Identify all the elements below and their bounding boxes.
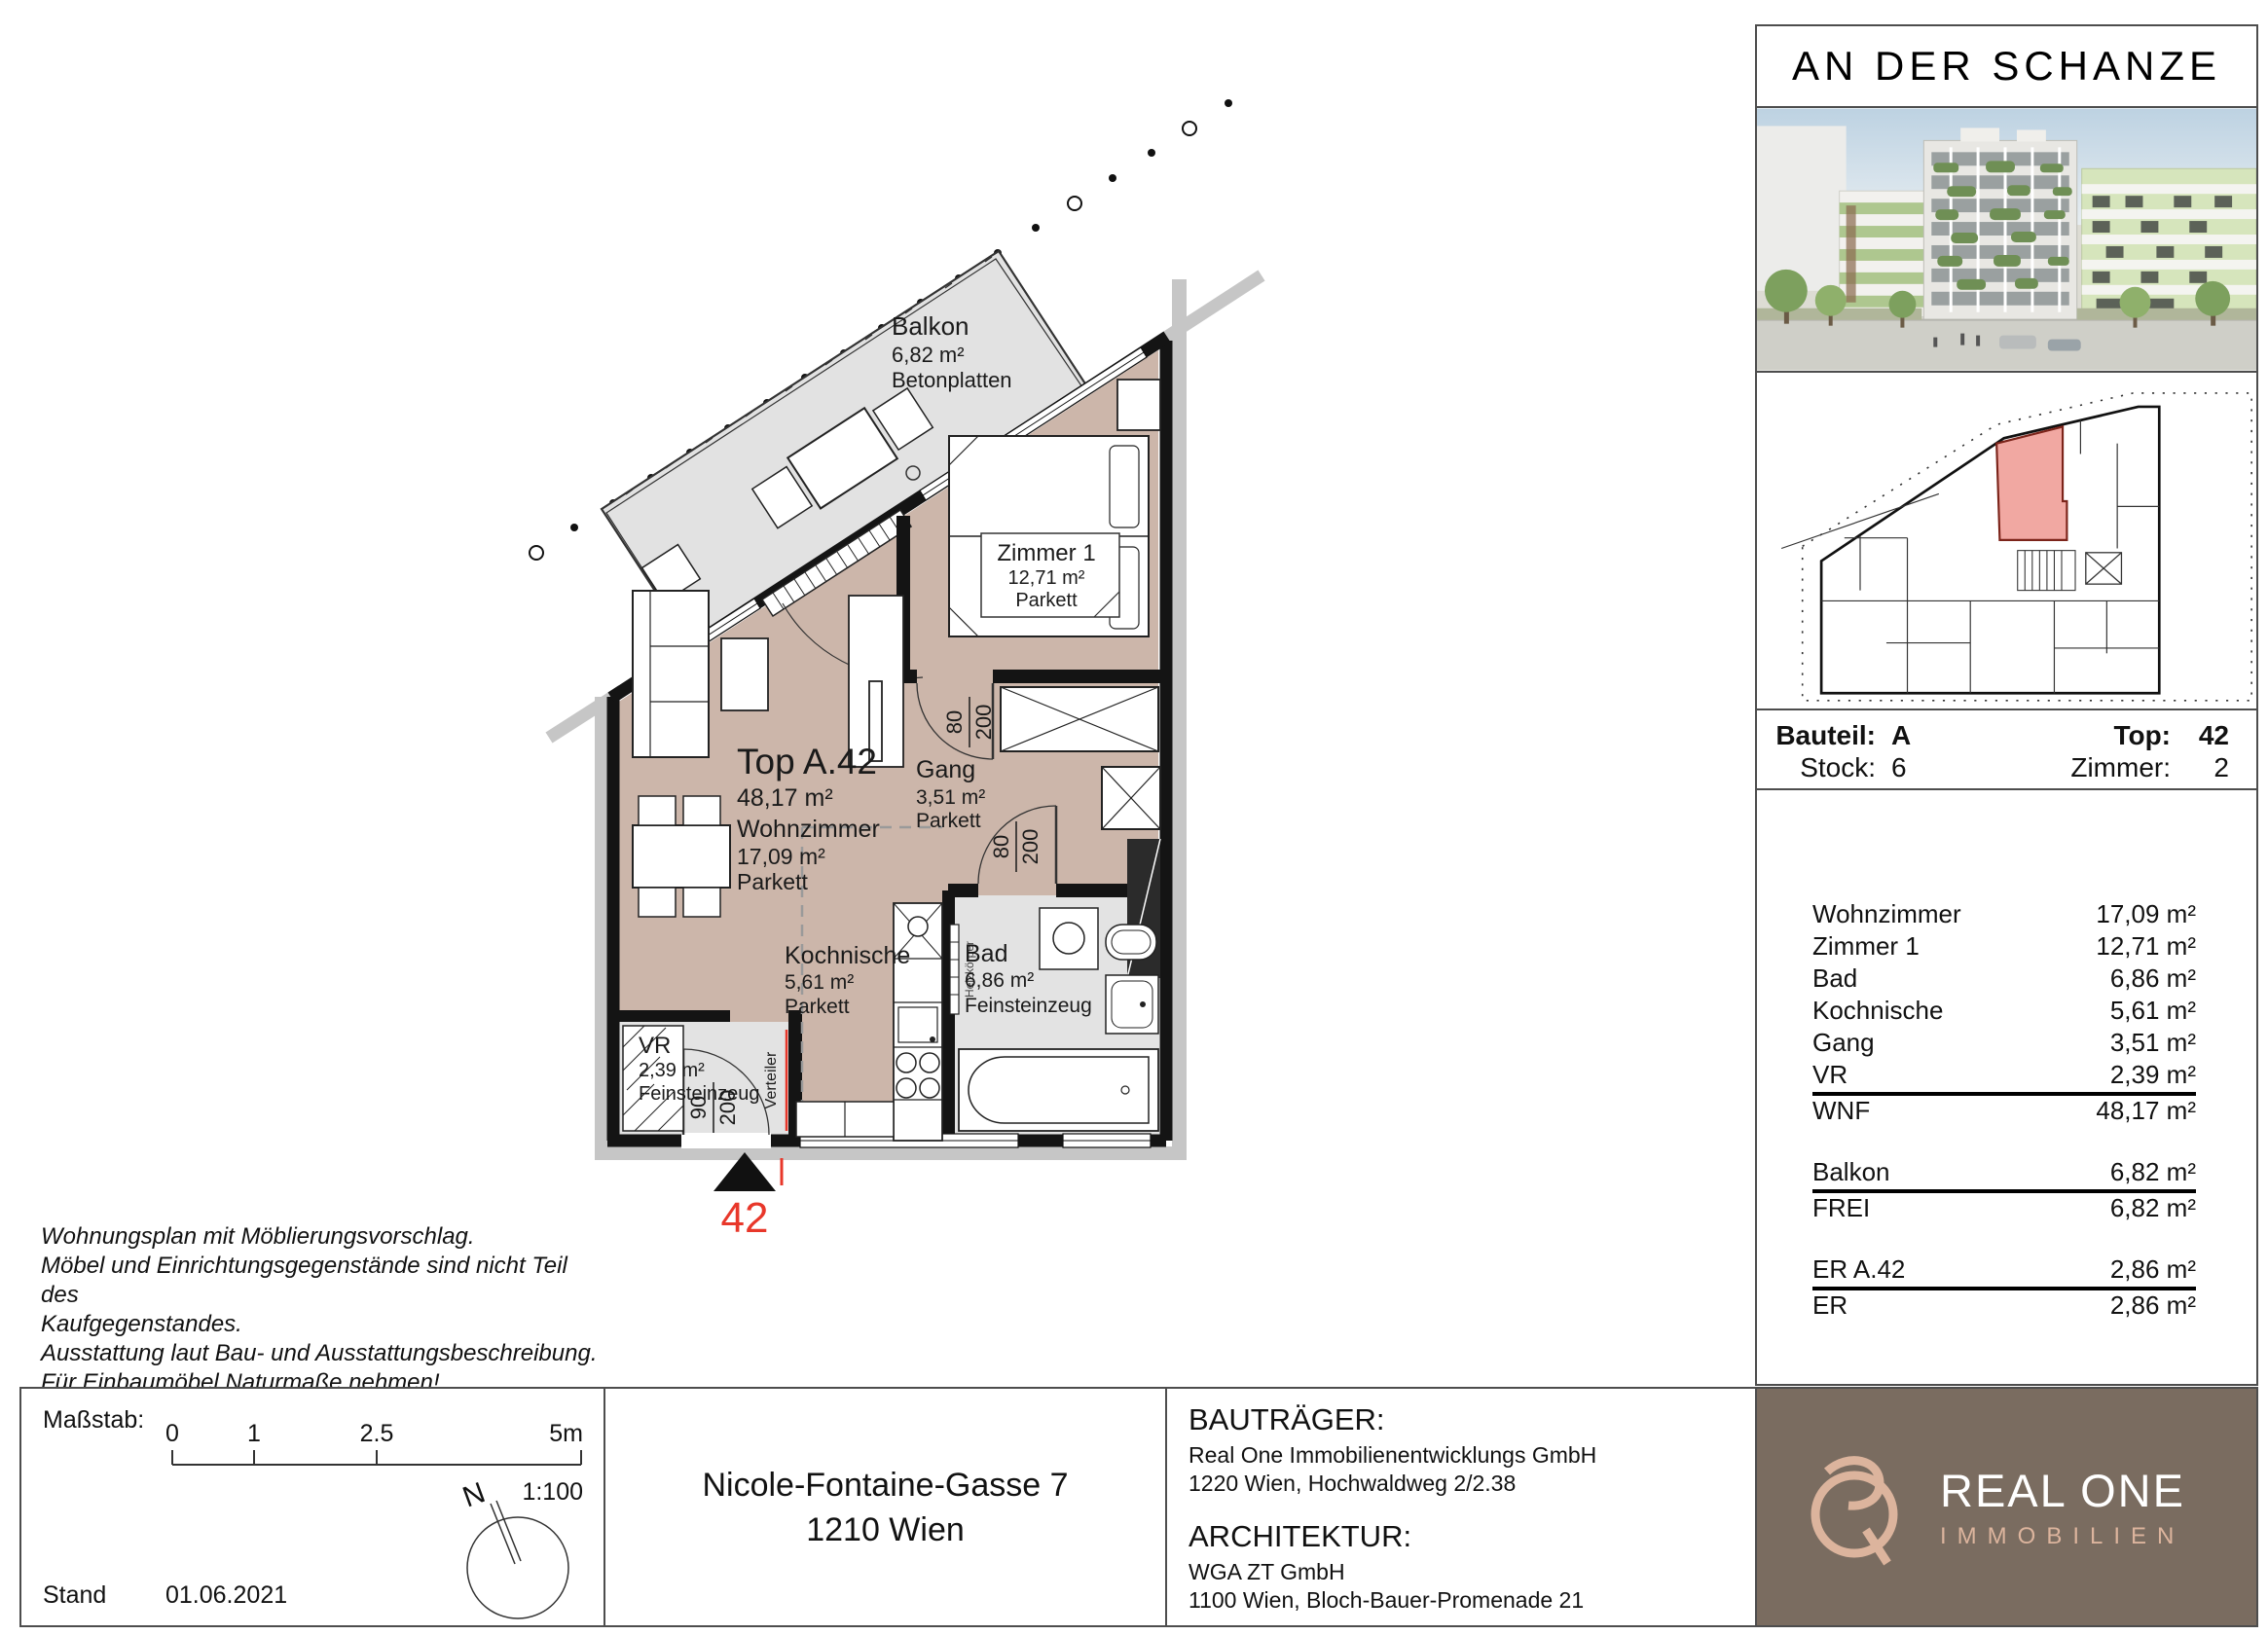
top-value: 42	[2184, 719, 2229, 751]
svg-text:Feinsteinzeug: Feinsteinzeug	[965, 995, 1092, 1017]
highlighted-unit	[1996, 426, 2067, 539]
brand-logo-box: REAL ONE IMMOBILIEN	[1755, 1387, 2258, 1627]
svg-text:Kochnische: Kochnische	[785, 942, 910, 969]
plan-sheet: Balkon 6,82 m² Betonplatten	[0, 0, 2268, 1635]
project-title: AN DER SCHANZE	[1757, 26, 2256, 108]
svg-text:200: 200	[971, 705, 996, 741]
balkon-name: Balkon	[892, 311, 969, 341]
floor-plan: Balkon 6,82 m² Betonplatten	[516, 83, 1304, 1251]
area-table: Wohnzimmer17,09 m² Zimmer 112,71 m² Bad6…	[1757, 790, 2256, 1323]
table-row: Gang3,51 m²	[1812, 1028, 2196, 1060]
unit-title: Top A.42	[737, 742, 877, 781]
bauteil-value: A	[1891, 719, 1911, 751]
svg-text:200: 200	[1018, 829, 1043, 865]
zimmer1-floor: Parkett	[1015, 590, 1078, 611]
svg-text:Bad: Bad	[965, 940, 1007, 967]
key-plan	[1757, 373, 2256, 710]
svg-text:Wohnzimmer: Wohnzimmer	[737, 816, 880, 843]
stand-label: Stand	[43, 1581, 106, 1610]
table-row: Wohnzimmer17,09 m²	[1812, 899, 2196, 931]
unit-info: Bauteil:A Top:42 Stock:6 Zimmer:2	[1757, 710, 2256, 790]
architekt-name: WGA ZT GmbH	[1189, 1558, 1755, 1586]
svg-text:3,51 m²: 3,51 m²	[916, 786, 985, 809]
svg-text:Feinsteinzeug: Feinsteinzeug	[639, 1083, 760, 1105]
radiator	[950, 925, 959, 1014]
sidebar: AN DER SCHANZE	[1755, 24, 2258, 1386]
table-row: Bad6,86 m²	[1812, 963, 2196, 996]
project-render-image	[1757, 108, 2256, 373]
svg-text:6,86 m²: 6,86 m²	[965, 969, 1034, 992]
disclaimer-line: Ausstattung laut Bau- und Ausstattungsbe…	[41, 1339, 605, 1368]
brand-name: REAL ONE	[1940, 1464, 2185, 1517]
dresser	[1117, 380, 1160, 430]
stock-value: 6	[1891, 751, 1907, 783]
table-row: Kochnische5,61 m²	[1812, 996, 2196, 1028]
stair-core	[2018, 551, 2075, 591]
zimmer1-label: Zimmer 1 12,71 m² Parkett	[981, 533, 1119, 617]
table-row-frei: FREI6,82 m²	[1812, 1193, 2196, 1225]
svg-text:VR: VR	[639, 1033, 671, 1059]
pillow	[1110, 446, 1139, 527]
bautraeger-name: Real One Immobilienentwicklungs GmbH	[1189, 1441, 1755, 1470]
address-box: Nicole-Fontaine-Gasse 7 1210 Wien	[604, 1387, 1167, 1627]
svg-text:80: 80	[989, 835, 1013, 858]
sink	[908, 917, 928, 936]
bautraeger-address: 1220 Wien, Hochwaldweg 2/2.38	[1189, 1470, 1755, 1498]
svg-text:Gang: Gang	[916, 756, 975, 783]
bautraeger-heading: BAUTRÄGER:	[1189, 1402, 1755, 1437]
scale-tick-1: 1	[247, 1420, 261, 1447]
gang-wardrobe	[1001, 687, 1158, 751]
svg-text:Parkett: Parkett	[737, 869, 808, 894]
table-row-er-a42: ER A.422,86 m²	[1812, 1254, 2196, 1290]
svg-text:80: 80	[942, 710, 967, 734]
svg-text:Parkett: Parkett	[916, 810, 981, 832]
scale-box: Maßstab: 0 1 2.5 5m 1:100 N Stand 01.06.…	[19, 1387, 605, 1627]
zimmer-value: 2	[2184, 751, 2229, 783]
north-compass: N	[430, 1474, 596, 1625]
bauteil-label: Bauteil:	[1771, 719, 1876, 751]
zimmer1-area: 12,71 m²	[1008, 567, 1085, 589]
bathtub	[959, 1049, 1158, 1131]
dining-table	[633, 825, 730, 888]
scale-tick-2-5: 2.5	[360, 1420, 394, 1447]
zimmer1-name: Zimmer 1	[997, 540, 1095, 566]
disclaimer-line: Wohnungsplan mit Möblierungsvorschlag.	[41, 1222, 605, 1252]
balkon-area: 6,82 m²	[892, 343, 965, 367]
chair	[639, 796, 676, 825]
address-city: 1210 Wien	[806, 1508, 965, 1552]
chair	[683, 888, 720, 917]
project-title-text: AN DER SCHANZE	[1792, 43, 2221, 90]
brand-logo-text: REAL ONE IMMOBILIEN	[1940, 1464, 2185, 1550]
disclaimer-line: Kaufgegenstandes.	[41, 1310, 605, 1339]
svg-text:17,09 m²: 17,09 m²	[737, 844, 825, 869]
architektur-heading: ARCHITEKTUR:	[1189, 1519, 1755, 1554]
unit-number: 42	[721, 1194, 769, 1242]
svg-text:5,61 m²: 5,61 m²	[785, 971, 854, 994]
chair	[639, 888, 676, 917]
table-row-er: ER2,86 m²	[1812, 1290, 2196, 1323]
stand-date: 01.06.2021	[165, 1581, 287, 1610]
top-label: Top:	[2113, 719, 2171, 751]
sofa	[633, 591, 709, 757]
gang-label: Gang 3,51 m² Parkett	[916, 756, 985, 832]
masstab-label: Maßstab:	[43, 1406, 144, 1435]
scale-tick-0: 0	[165, 1420, 179, 1447]
table-row: VR2,39 m²	[1812, 1060, 2196, 1096]
coffee-table	[721, 638, 768, 710]
elevator	[2086, 553, 2122, 584]
architekt-address: 1100 Wien, Bloch-Bauer-Promenade 21	[1189, 1586, 1755, 1615]
chair	[683, 796, 720, 825]
svg-text:Parkett: Parkett	[785, 996, 850, 1018]
unit-area: 48,17 m²	[737, 784, 833, 812]
north-label: N	[458, 1476, 490, 1513]
table-row: Zimmer 112,71 m²	[1812, 931, 2196, 963]
svg-text:2,39 m²: 2,39 m²	[639, 1060, 705, 1081]
shaft-box	[1102, 767, 1160, 829]
brand-subtitle: IMMOBILIEN	[1940, 1523, 2185, 1550]
zimmer-label: Zimmer:	[2070, 751, 2171, 783]
key-plan-drawing	[1778, 381, 2268, 716]
balkon-floor: Betonplatten	[892, 368, 1012, 392]
scale-tick-5m: 5m	[549, 1420, 583, 1447]
parties-box: BAUTRÄGER: Real One Immobilienentwicklun…	[1165, 1387, 1757, 1627]
real-one-logo-icon	[1790, 1435, 1926, 1580]
render-illustration	[1757, 108, 2256, 371]
address-street: Nicole-Fontaine-Gasse 7	[702, 1463, 1068, 1508]
disclaimer-line: Möbel und Einrichtungsgegenstände sind n…	[41, 1252, 605, 1310]
table-row-balkon: Balkon6,82 m²	[1812, 1157, 2196, 1193]
stock-label: Stock:	[1771, 751, 1876, 783]
verteiler-label: Verteiler	[763, 1051, 780, 1108]
table-row-wnf: WNF48,17 m²	[1812, 1096, 2196, 1128]
